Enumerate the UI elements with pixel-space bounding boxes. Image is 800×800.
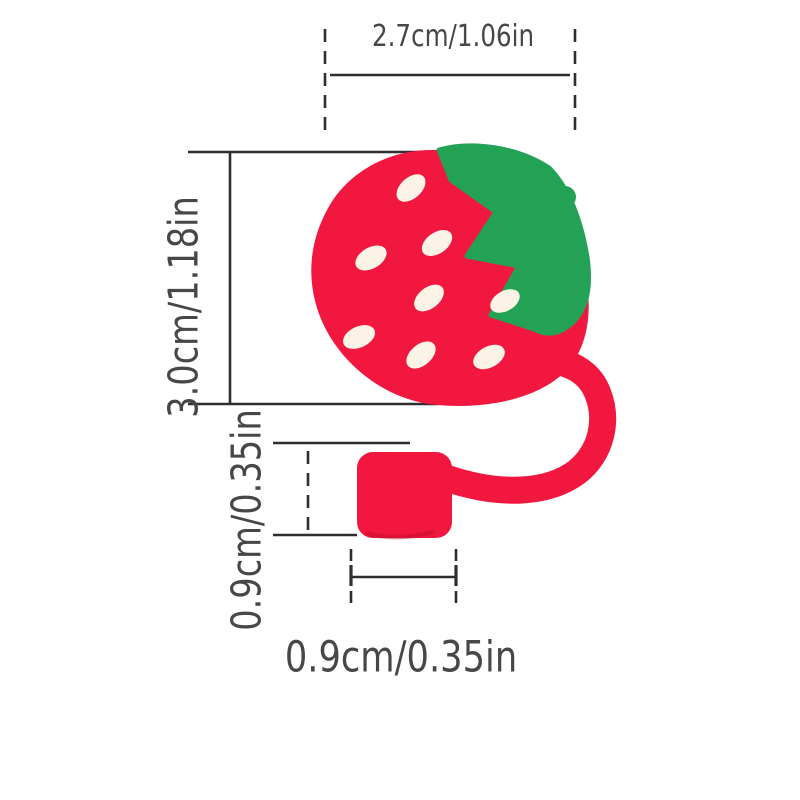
product-dimension-diagram: 2.7cm/1.06in 3.0cm/1.18in 0.9cm/0.35in 0… <box>0 0 800 800</box>
total-height-label: 3.0cm/1.18in <box>164 196 205 418</box>
straw-cap <box>357 452 452 538</box>
strawberry-straw-topper-illustration <box>311 146 602 538</box>
top-width-label: 2.7cm/1.06in <box>372 22 534 52</box>
cap-width-label: 0.9cm/0.35in <box>285 637 517 680</box>
cap-height-label: 0.9cm/0.35in <box>227 409 268 631</box>
